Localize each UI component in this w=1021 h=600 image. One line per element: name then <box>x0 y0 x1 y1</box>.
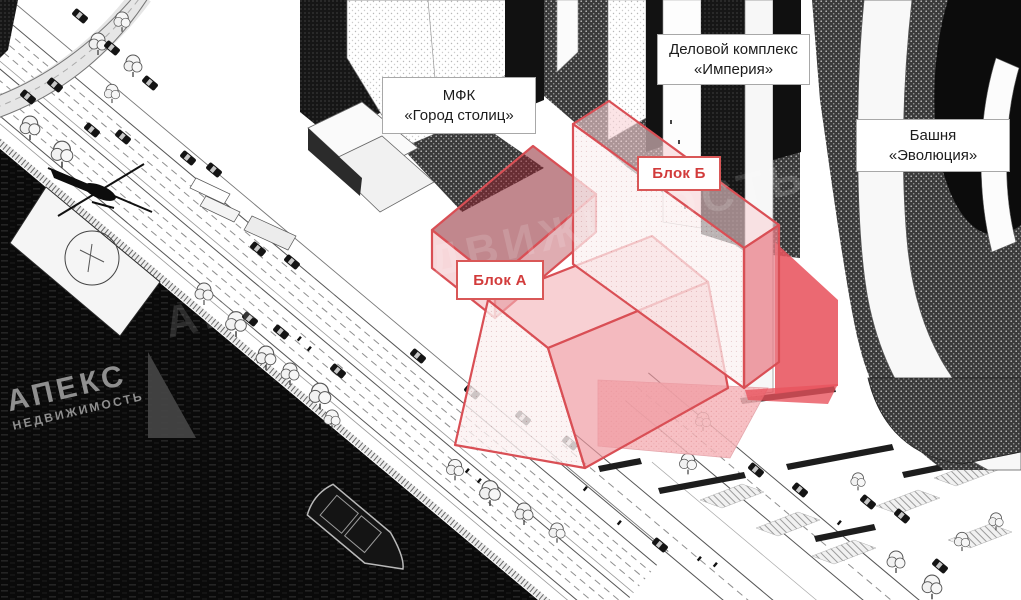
label-blok-b: Блок Б <box>637 156 721 191</box>
label-line: Блок А <box>473 272 527 289</box>
label-line: МФК <box>443 86 475 106</box>
label-line: Деловой комплекс <box>669 40 798 60</box>
label-evolution: Башня «Эволюция» <box>856 119 1010 172</box>
label-blok-a: Блок А <box>456 260 544 300</box>
site-plan-image: МФК «Город столиц» Деловой комплекс «Имп… <box>0 0 1021 600</box>
label-line: «Город столиц» <box>404 106 513 126</box>
label-line: «Эволюция» <box>889 146 977 166</box>
label-imperia: Деловой комплекс «Империя» <box>657 34 810 85</box>
label-line: «Империя» <box>694 60 773 80</box>
label-line: Башня <box>910 126 957 146</box>
label-mfk: МФК «Город столиц» <box>382 77 536 134</box>
label-line: Блок Б <box>652 165 706 182</box>
